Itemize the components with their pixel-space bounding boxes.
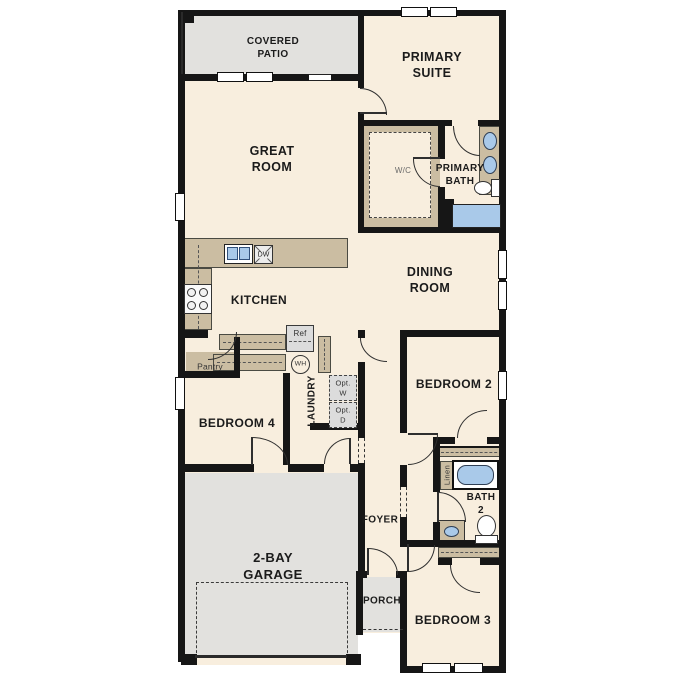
wall	[178, 464, 254, 472]
refrigerator-label: Ref	[293, 329, 306, 339]
bedroom2-label: BEDROOM 2	[416, 377, 492, 393]
water-heater-label: WH	[295, 360, 307, 369]
garage-parking-dashed	[196, 582, 348, 658]
bedroom2-closet-shelf	[438, 446, 506, 457]
window	[498, 250, 507, 279]
window	[401, 7, 428, 17]
primary-suite-label: PRIMARY SUITE	[402, 49, 462, 82]
bath2-tub	[452, 460, 499, 490]
linen-label: Linen	[443, 465, 452, 485]
garage-corner-post	[346, 654, 361, 665]
dishwasher-label: DW	[257, 251, 271, 258]
dishwasher: DW	[254, 245, 273, 264]
wall	[184, 330, 208, 338]
kitchen-label: KITCHEN	[231, 293, 287, 309]
optional-dryer: Opt. D	[329, 402, 357, 428]
toilet-bowl	[477, 515, 496, 537]
porch-label: PORCH	[363, 595, 401, 608]
wall	[433, 522, 440, 540]
door-leaf	[413, 157, 440, 159]
refrigerator: Ref	[286, 325, 314, 352]
exterior-cutout	[178, 665, 361, 687]
bath2-sink	[444, 526, 459, 537]
door-leaf	[408, 433, 438, 435]
primary-shower	[452, 204, 501, 228]
optional-washer: Opt. W	[329, 375, 357, 401]
vanity-sink	[483, 132, 497, 150]
bedroom3-closet-shelf	[438, 547, 506, 558]
foyer-label: FOYER	[362, 514, 398, 527]
laundry-label: LAUNDRY	[307, 375, 318, 426]
wic-label: W/C	[395, 166, 411, 176]
wall	[356, 571, 367, 578]
stove	[184, 284, 212, 314]
tub-basin	[457, 465, 494, 485]
ceiling-opening-dashed	[358, 438, 365, 463]
burner	[187, 288, 196, 297]
great-room-label: GREAT ROOM	[250, 143, 295, 176]
counter-dash-line	[217, 362, 282, 363]
refrigerator-dash	[289, 341, 311, 342]
window	[454, 663, 483, 673]
pantry-label: Pantry	[197, 361, 223, 372]
optional-washer-label: Opt. W	[336, 378, 351, 398]
primary-bath-label: PRIMARY BATH	[436, 162, 485, 188]
wall	[400, 465, 407, 487]
window	[422, 663, 451, 673]
garage-door-line	[195, 655, 347, 658]
wall	[480, 558, 506, 565]
wall	[358, 112, 364, 233]
wall	[487, 437, 506, 444]
bath2-label: BATH 2	[467, 491, 496, 517]
wall	[478, 120, 506, 126]
exterior-cutout	[358, 633, 400, 669]
wall	[358, 362, 365, 438]
patio-edge-line	[181, 12, 183, 76]
wall	[288, 464, 324, 472]
water-heater: WH	[291, 355, 310, 374]
window	[175, 193, 185, 221]
door-leaf	[360, 112, 387, 114]
toilet-tank	[475, 535, 498, 544]
burner	[187, 301, 196, 310]
burner	[199, 288, 208, 297]
window	[175, 377, 185, 410]
wall	[356, 578, 363, 635]
door-leaf	[251, 437, 253, 465]
sink-basin	[239, 247, 250, 260]
shelf-dash-line	[441, 552, 502, 553]
toilet-tank	[491, 179, 500, 197]
wall	[400, 572, 407, 672]
wall	[358, 14, 364, 88]
window	[217, 72, 244, 82]
porch-edge-dashed	[363, 629, 403, 630]
floor-plan: DW Ref WH Opt. W Opt. D	[0, 0, 687, 687]
door-leaf	[349, 438, 351, 464]
wall	[283, 373, 290, 465]
wall	[438, 187, 445, 228]
sink-basin	[227, 247, 238, 260]
front-door-leaf	[367, 548, 369, 575]
patio-slider-opening	[309, 74, 331, 81]
wall	[438, 558, 452, 565]
covered-patio-label: COVERED PATIO	[247, 35, 299, 61]
ceiling-opening-dashed	[400, 487, 407, 517]
window	[498, 281, 507, 310]
kitchen-sink	[224, 244, 253, 264]
window	[246, 72, 273, 82]
dining-room-label: DINING ROOM	[407, 264, 453, 297]
garage-label: 2-BAY GARAGE	[243, 550, 302, 584]
counter	[213, 354, 286, 371]
burner	[199, 301, 208, 310]
wall	[438, 126, 445, 159]
wall	[358, 330, 365, 338]
wall	[400, 666, 506, 673]
door-leaf	[437, 492, 439, 522]
optional-dryer-label: Opt. D	[336, 405, 351, 425]
wall	[400, 330, 506, 337]
cabinet-dash-line	[324, 339, 325, 370]
wall	[400, 330, 407, 433]
laundry-cabinet	[318, 336, 331, 373]
bedroom3-label: BEDROOM 3	[415, 613, 491, 629]
wall	[499, 10, 506, 673]
window	[430, 7, 457, 17]
window	[498, 371, 507, 400]
shelf-dash-line	[441, 452, 502, 453]
bedroom4-label: BEDROOM 4	[199, 416, 275, 432]
vanity-sink	[483, 156, 497, 174]
wall	[400, 517, 407, 542]
door-leaf	[407, 544, 409, 572]
